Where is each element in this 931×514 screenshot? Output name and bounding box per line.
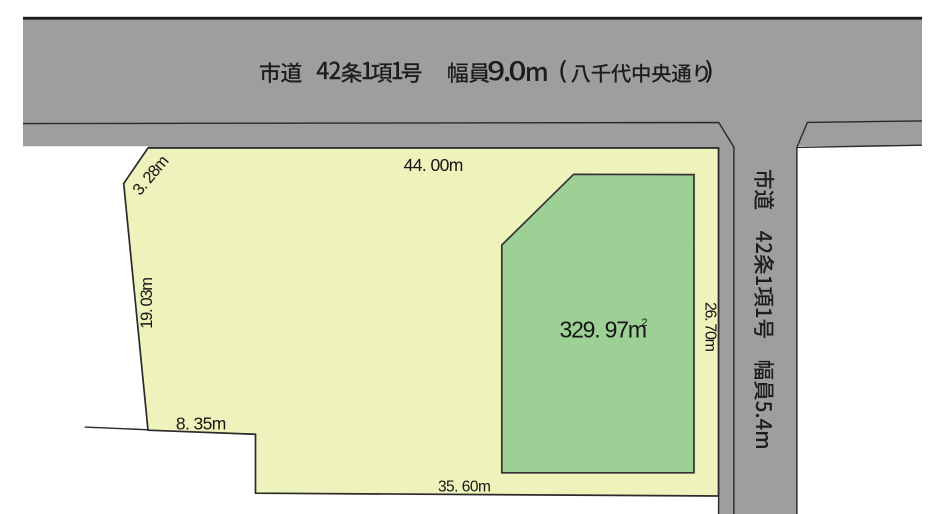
svg-text:8. 35m: 8. 35m bbox=[176, 413, 226, 433]
svg-text:35. 60m: 35. 60m bbox=[438, 478, 491, 495]
svg-text:19. 03m: 19. 03m bbox=[138, 278, 156, 329]
svg-text:26. 70m: 26. 70m bbox=[701, 302, 718, 352]
svg-text:44. 00m: 44. 00m bbox=[404, 155, 463, 175]
svg-text:329. 97m2: 329. 97m2 bbox=[560, 317, 648, 343]
